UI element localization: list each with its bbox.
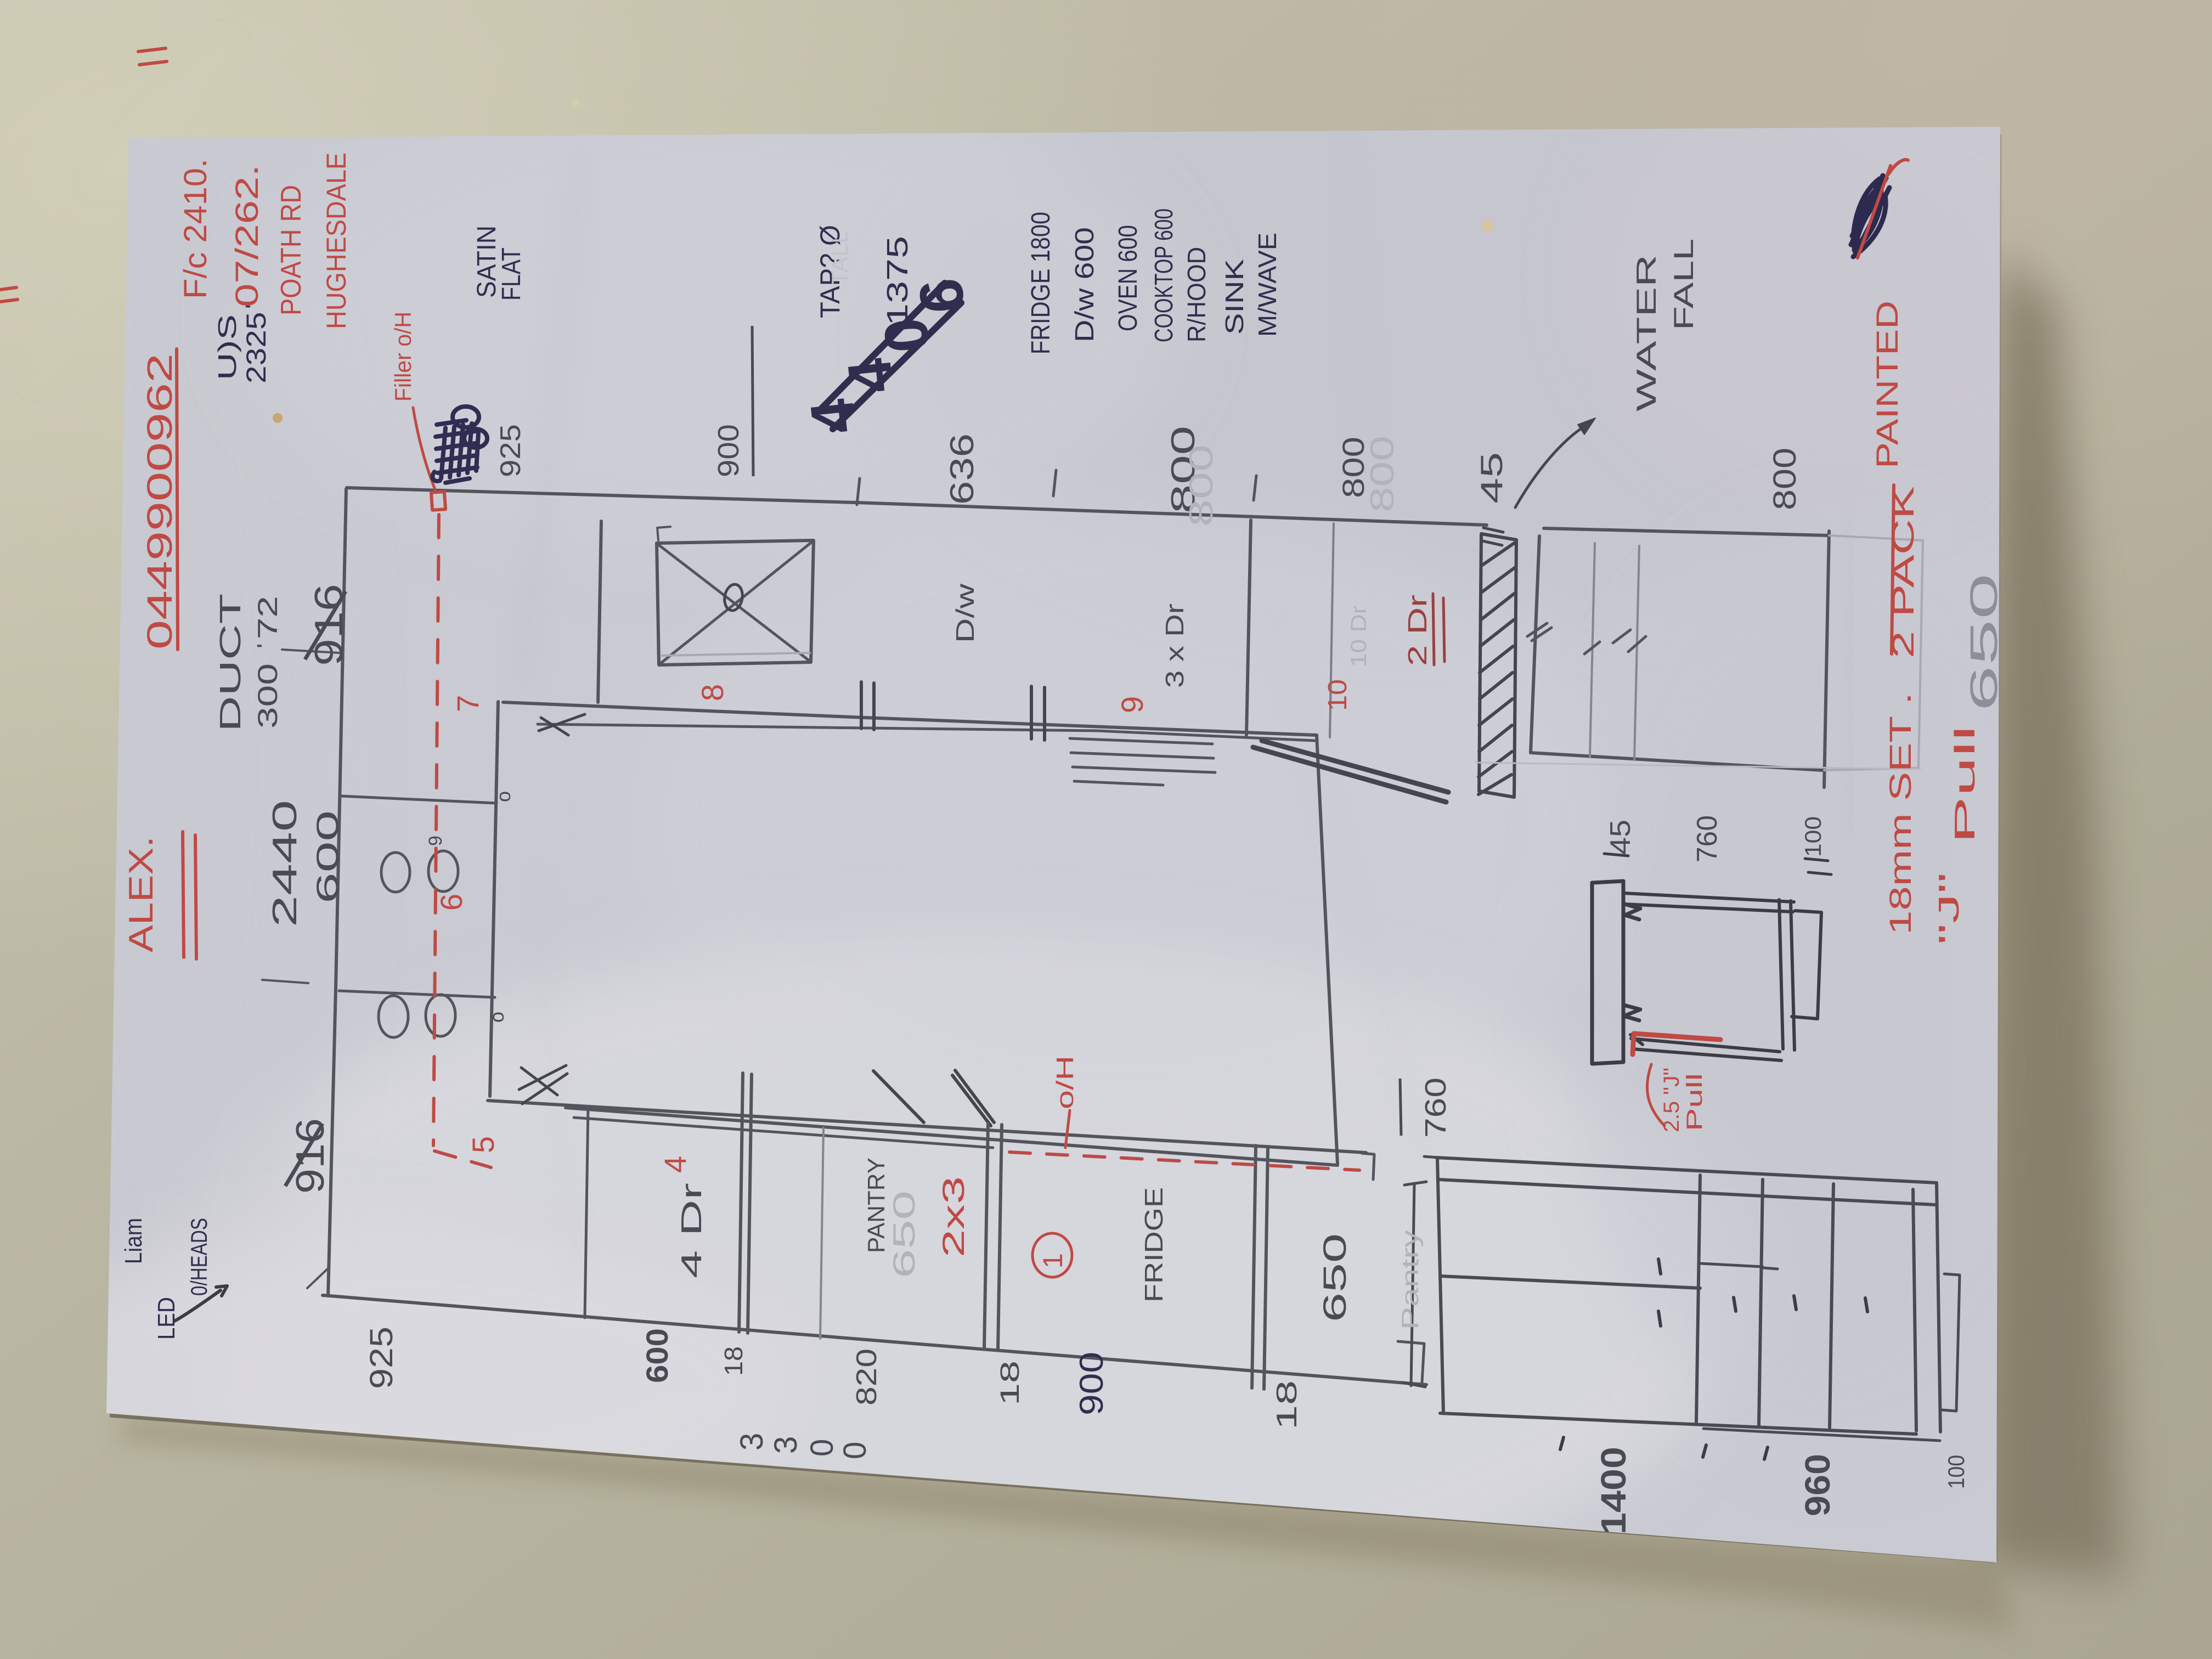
svg-text:2x3: 2x3 [936, 1176, 970, 1257]
svg-text:3: 3 [768, 1436, 804, 1454]
svg-text:600: 600 [640, 1328, 674, 1383]
svg-text:HUGHESDALE: HUGHESDALE [321, 153, 352, 329]
svg-text:650: 650 [887, 1190, 921, 1278]
svg-text:960: 960 [1798, 1454, 1837, 1516]
svg-text:M/WAVE: M/WAVE [1253, 233, 1282, 337]
svg-text:9: 9 [425, 836, 446, 846]
svg-text:FALL: FALL [1668, 239, 1699, 330]
svg-text:100: 100 [1943, 1455, 1969, 1489]
svg-text:300 ˈ72: 300 ˈ72 [252, 596, 283, 729]
svg-text:4: 4 [658, 1156, 692, 1173]
svg-text:2 Dr: 2 Dr [1403, 595, 1432, 666]
svg-text:820: 820 [851, 1348, 883, 1406]
svg-text:D/w: D/w [951, 583, 979, 643]
svg-text:7: 7 [450, 695, 485, 712]
svg-text:800: 800 [1767, 448, 1803, 510]
svg-text:650: 650 [1962, 573, 2005, 712]
svg-text:COOKTOP 600: COOKTOP 600 [1149, 208, 1178, 342]
svg-text:0: 0 [804, 1439, 840, 1457]
svg-text:F/c 2410.: F/c 2410. [178, 159, 213, 299]
svg-text:Pantry: Pantry [1397, 1230, 1424, 1330]
svg-text:ALEX.: ALEX. [122, 836, 160, 952]
svg-text:6: 6 [434, 894, 469, 911]
svg-text:FLAT: FLAT [497, 247, 526, 301]
svg-text:DUCT: DUCT [214, 594, 247, 732]
svg-text:18: 18 [719, 1346, 748, 1376]
svg-text:PAINTED: PAINTED [1870, 301, 1904, 469]
svg-text:R/HOOD: R/HOOD [1182, 247, 1211, 342]
svg-text:Pull: Pull [1949, 725, 1981, 844]
svg-text:900: 900 [712, 424, 745, 477]
svg-text:0: 0 [837, 1442, 873, 1459]
svg-text:636: 636 [944, 433, 980, 505]
svg-text:PANTRY: PANTRY [863, 1158, 890, 1253]
svg-text:10: 10 [1323, 679, 1352, 711]
svg-text:760: 760 [1419, 1077, 1452, 1138]
svg-text:18: 18 [1271, 1380, 1303, 1430]
svg-text:TALL: TALL [827, 230, 853, 285]
svg-text:925: 925 [364, 1327, 399, 1389]
svg-text:100: 100 [1800, 816, 1826, 857]
svg-text:U)S: U)S [213, 314, 241, 380]
svg-text:8: 8 [695, 684, 730, 701]
svg-text:916: 916 [289, 1118, 332, 1194]
svg-text:Filler o/H: Filler o/H [390, 312, 416, 402]
svg-text:45: 45 [1605, 820, 1637, 855]
svg-text:900: 900 [1073, 1352, 1110, 1415]
svg-text:"J": "J" [1933, 872, 1965, 945]
svg-text:SINK: SINK [1220, 259, 1249, 335]
svg-text:2440: 2440 [266, 800, 304, 927]
svg-text:2 PACK: 2 PACK [1886, 486, 1920, 658]
svg-text:Pull: Pull [1683, 1073, 1707, 1131]
svg-text:o: o [486, 1012, 508, 1023]
svg-text:18mm SET .: 18mm SET . [1883, 692, 1917, 935]
svg-text:07/262.: 07/262. [229, 165, 265, 307]
svg-text:45: 45 [1474, 452, 1509, 504]
svg-text:1: 1 [1037, 1253, 1068, 1268]
svg-text:3: 3 [734, 1433, 770, 1451]
svg-text:9: 9 [1115, 696, 1149, 713]
svg-text:0449900962: 0449900962 [140, 353, 179, 650]
svg-text:650: 650 [1317, 1233, 1353, 1322]
svg-text:760: 760 [1691, 815, 1723, 862]
svg-text:2.5 "J": 2.5 "J" [1660, 1068, 1684, 1132]
svg-text:800: 800 [1364, 436, 1401, 512]
svg-text:925: 925 [495, 424, 527, 477]
svg-text:800: 800 [1183, 444, 1220, 527]
svg-text:10 Dr: 10 Dr [1347, 606, 1371, 667]
svg-text:0/HEADS: 0/HEADS [186, 1218, 212, 1296]
svg-text:POATH RD: POATH RD [275, 185, 307, 315]
svg-text:FRIDGE: FRIDGE [1139, 1187, 1168, 1302]
svg-text:4 Dr: 4 Dr [676, 1183, 708, 1278]
svg-text:2325ˈ: 2325ˈ [241, 301, 272, 383]
svg-text:600: 600 [310, 810, 345, 904]
svg-text:o/H: o/H [1052, 1056, 1079, 1109]
svg-text:LED: LED [153, 1297, 180, 1340]
svg-text:o: o [492, 791, 515, 802]
svg-text:3 x Dr: 3 x Dr [1160, 603, 1189, 688]
svg-text:18: 18 [996, 1361, 1025, 1406]
svg-text:D/w 600: D/w 600 [1070, 227, 1099, 342]
svg-text:5: 5 [466, 1136, 500, 1153]
svg-text:WATER: WATER [1631, 255, 1662, 411]
svg-text:OVEN 600: OVEN 600 [1114, 225, 1143, 331]
svg-text:1400: 1400 [1594, 1447, 1633, 1534]
svg-text:Liam: Liam [120, 1218, 147, 1264]
svg-text:FRIDGE 1800: FRIDGE 1800 [1026, 212, 1056, 354]
